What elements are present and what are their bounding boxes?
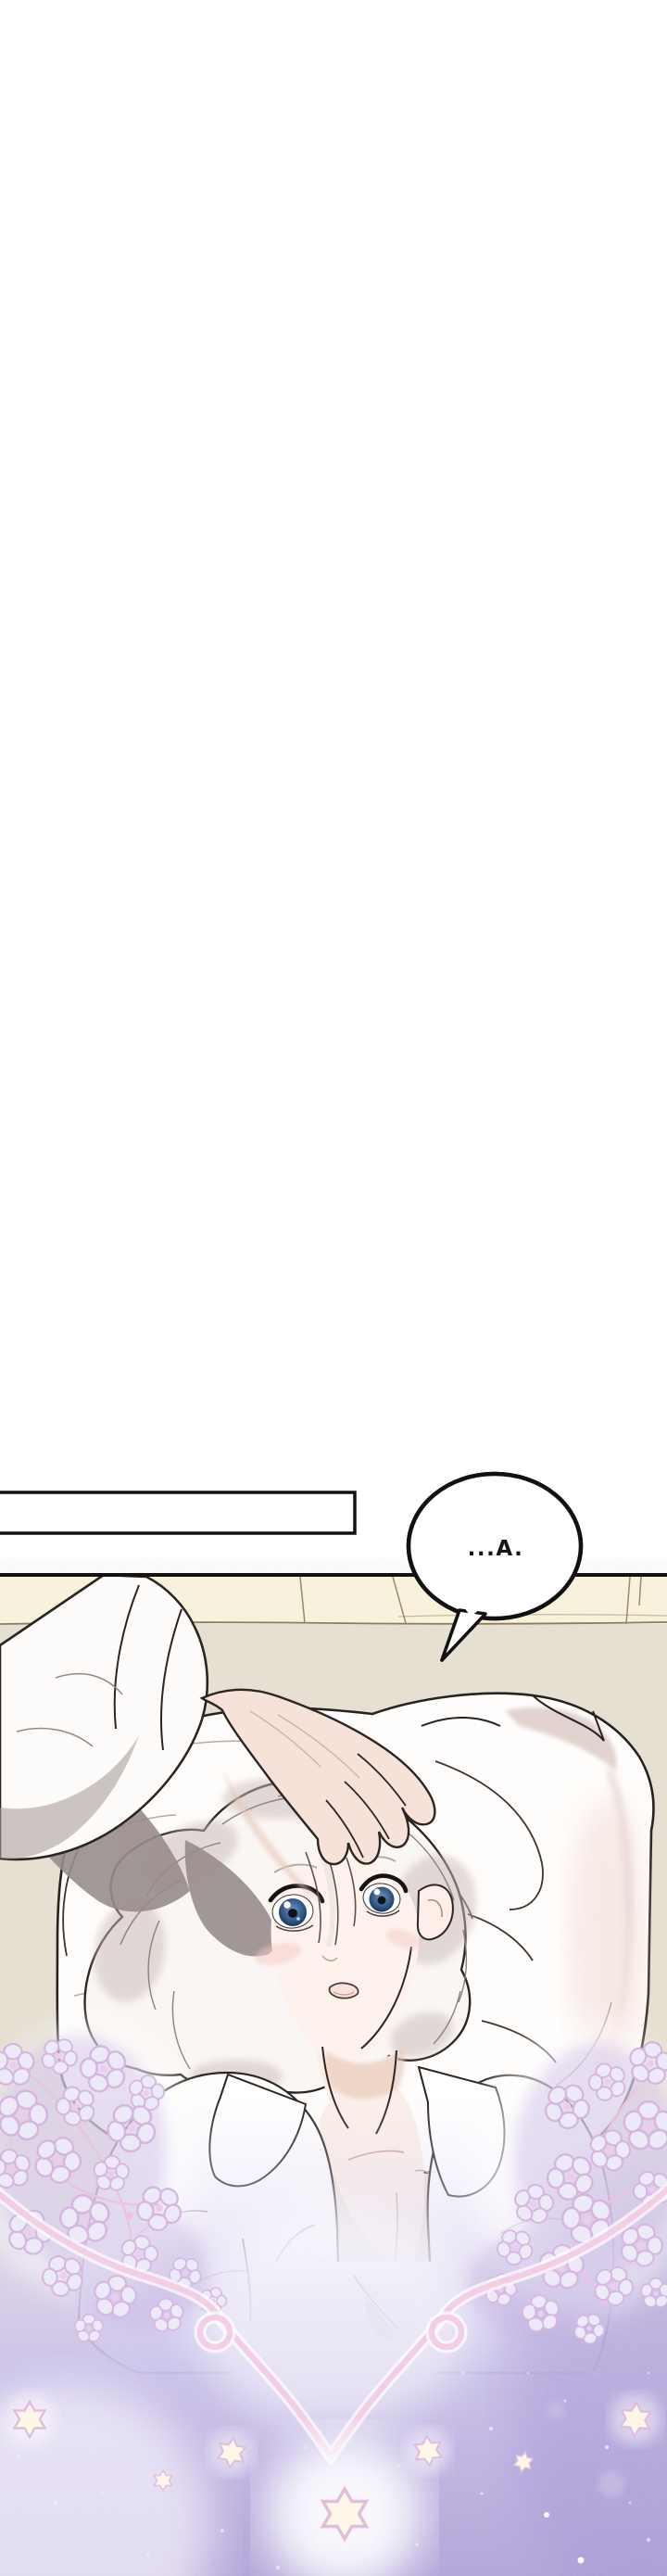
- caption-box: [0, 1492, 355, 1533]
- bubble-text-top: ...A.: [468, 1537, 524, 1561]
- comic-page: ...A.: [0, 0, 667, 2576]
- sparkle-texture: [0, 2252, 667, 2576]
- artwork-svg: ...A.: [0, 0, 667, 2576]
- bottom-overlay: [0, 2021, 667, 2576]
- mouth: [330, 1983, 359, 1998]
